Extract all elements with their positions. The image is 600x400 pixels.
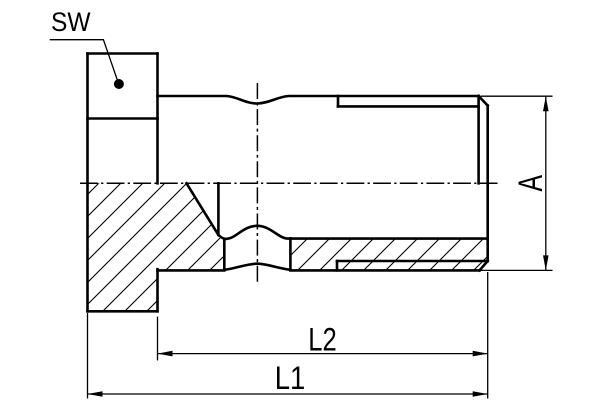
- svg-text:SW: SW: [51, 7, 91, 37]
- svg-text:L2: L2: [308, 322, 337, 358]
- svg-text:L1: L1: [275, 360, 306, 396]
- svg-text:A: A: [512, 175, 550, 192]
